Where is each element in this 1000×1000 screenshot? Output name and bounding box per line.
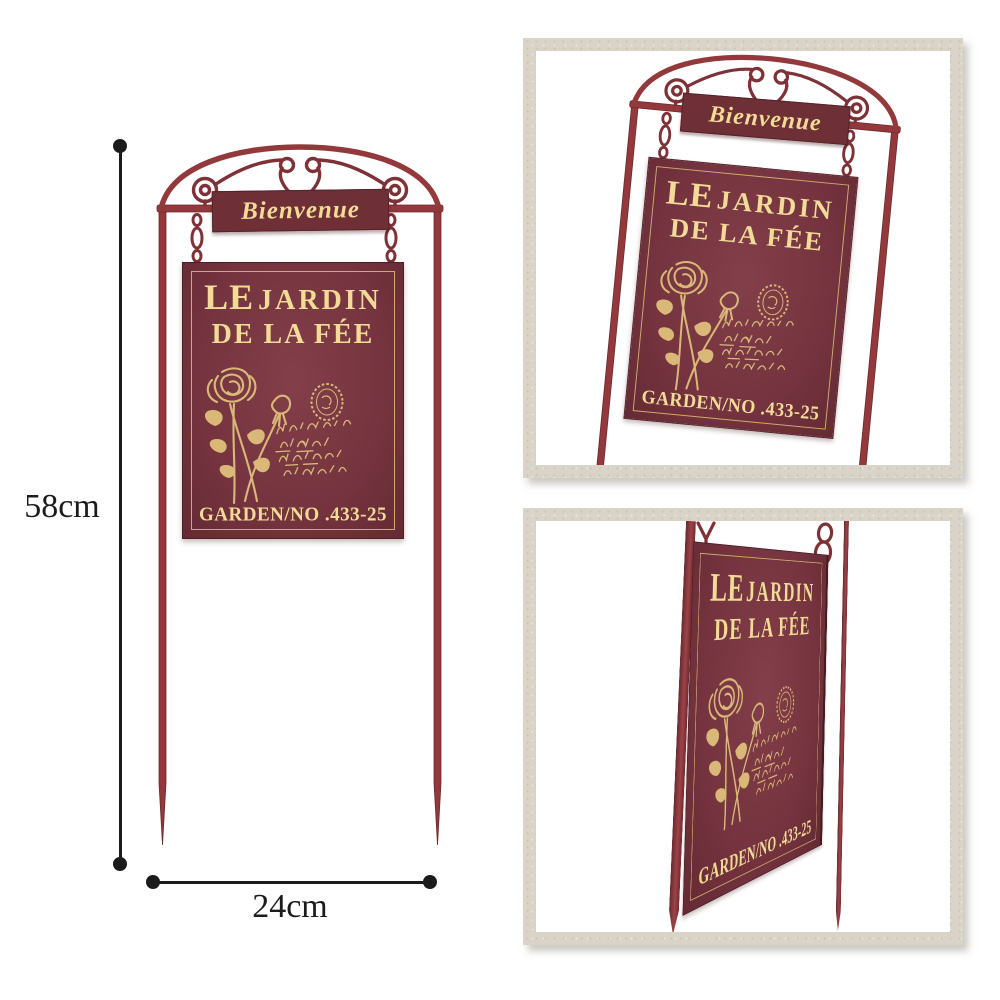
detail-photo-top-inner: Bienvenue LE JARDIN DE LA FÉE xyxy=(536,51,950,465)
title-le: LE xyxy=(664,173,715,215)
handwritten-script xyxy=(273,418,382,487)
title-le: LE xyxy=(710,566,745,610)
dimension-dot xyxy=(113,857,127,871)
width-dimension-line xyxy=(153,881,430,884)
rose-leaves xyxy=(205,410,270,478)
plate-title: LE JARDIN xyxy=(183,279,403,317)
height-dimension-line xyxy=(119,146,122,864)
right-stake xyxy=(434,209,441,845)
sign-plate: LE JARDIN DE LA FÉE xyxy=(683,541,829,916)
garden-number: GARDEN/NO .433-25 xyxy=(183,503,403,527)
detail-photo-bottom: LE JARDIN DE LA FÉE xyxy=(523,508,963,945)
bienvenue-text: Bienvenue xyxy=(708,102,822,135)
round-stamp xyxy=(775,683,796,728)
right-stake xyxy=(835,521,849,931)
dimension-dot xyxy=(423,875,437,889)
dimension-dot xyxy=(113,139,127,153)
round-stamp xyxy=(754,281,792,324)
title-line2: DE LA FÉE xyxy=(691,611,825,650)
width-label: 24cm xyxy=(200,888,380,926)
plate-title: LE JARDIN xyxy=(692,566,826,610)
detail-photo-bottom-inner: LE JARDIN DE LA FÉE xyxy=(536,521,950,932)
title-le: LE xyxy=(204,277,254,317)
title-jardin: JARDIN xyxy=(258,285,382,316)
left-stake xyxy=(159,209,166,845)
title-jardin: JARDIN xyxy=(746,576,815,609)
sign-plate: LE JARDIN DE LA FÉE xyxy=(623,157,858,439)
bienvenue-text: Bienvenue xyxy=(241,197,360,224)
title-line2: DE LA FÉE xyxy=(183,319,403,351)
round-stamp xyxy=(309,381,345,423)
garden-sign: Bienvenue LE JARDIN DE LA FÉE xyxy=(155,143,445,855)
detail-photo-top: Bienvenue LE JARDIN DE LA FÉE xyxy=(523,38,963,478)
handwritten-script xyxy=(718,318,821,383)
sign-plate: LE JARDIN DE LA FÉE xyxy=(182,262,404,539)
sign-plate-3d: LE JARDIN DE LA FÉE xyxy=(683,541,827,914)
height-label: 58cm xyxy=(14,488,110,526)
angled-sign-scene: LE JARDIN DE LA FÉE xyxy=(536,521,950,932)
dimension-dot xyxy=(146,875,160,889)
bienvenue-plaque: Bienvenue xyxy=(212,189,390,232)
garden-sign-detail: Bienvenue LE JARDIN DE LA FÉE xyxy=(569,51,908,465)
